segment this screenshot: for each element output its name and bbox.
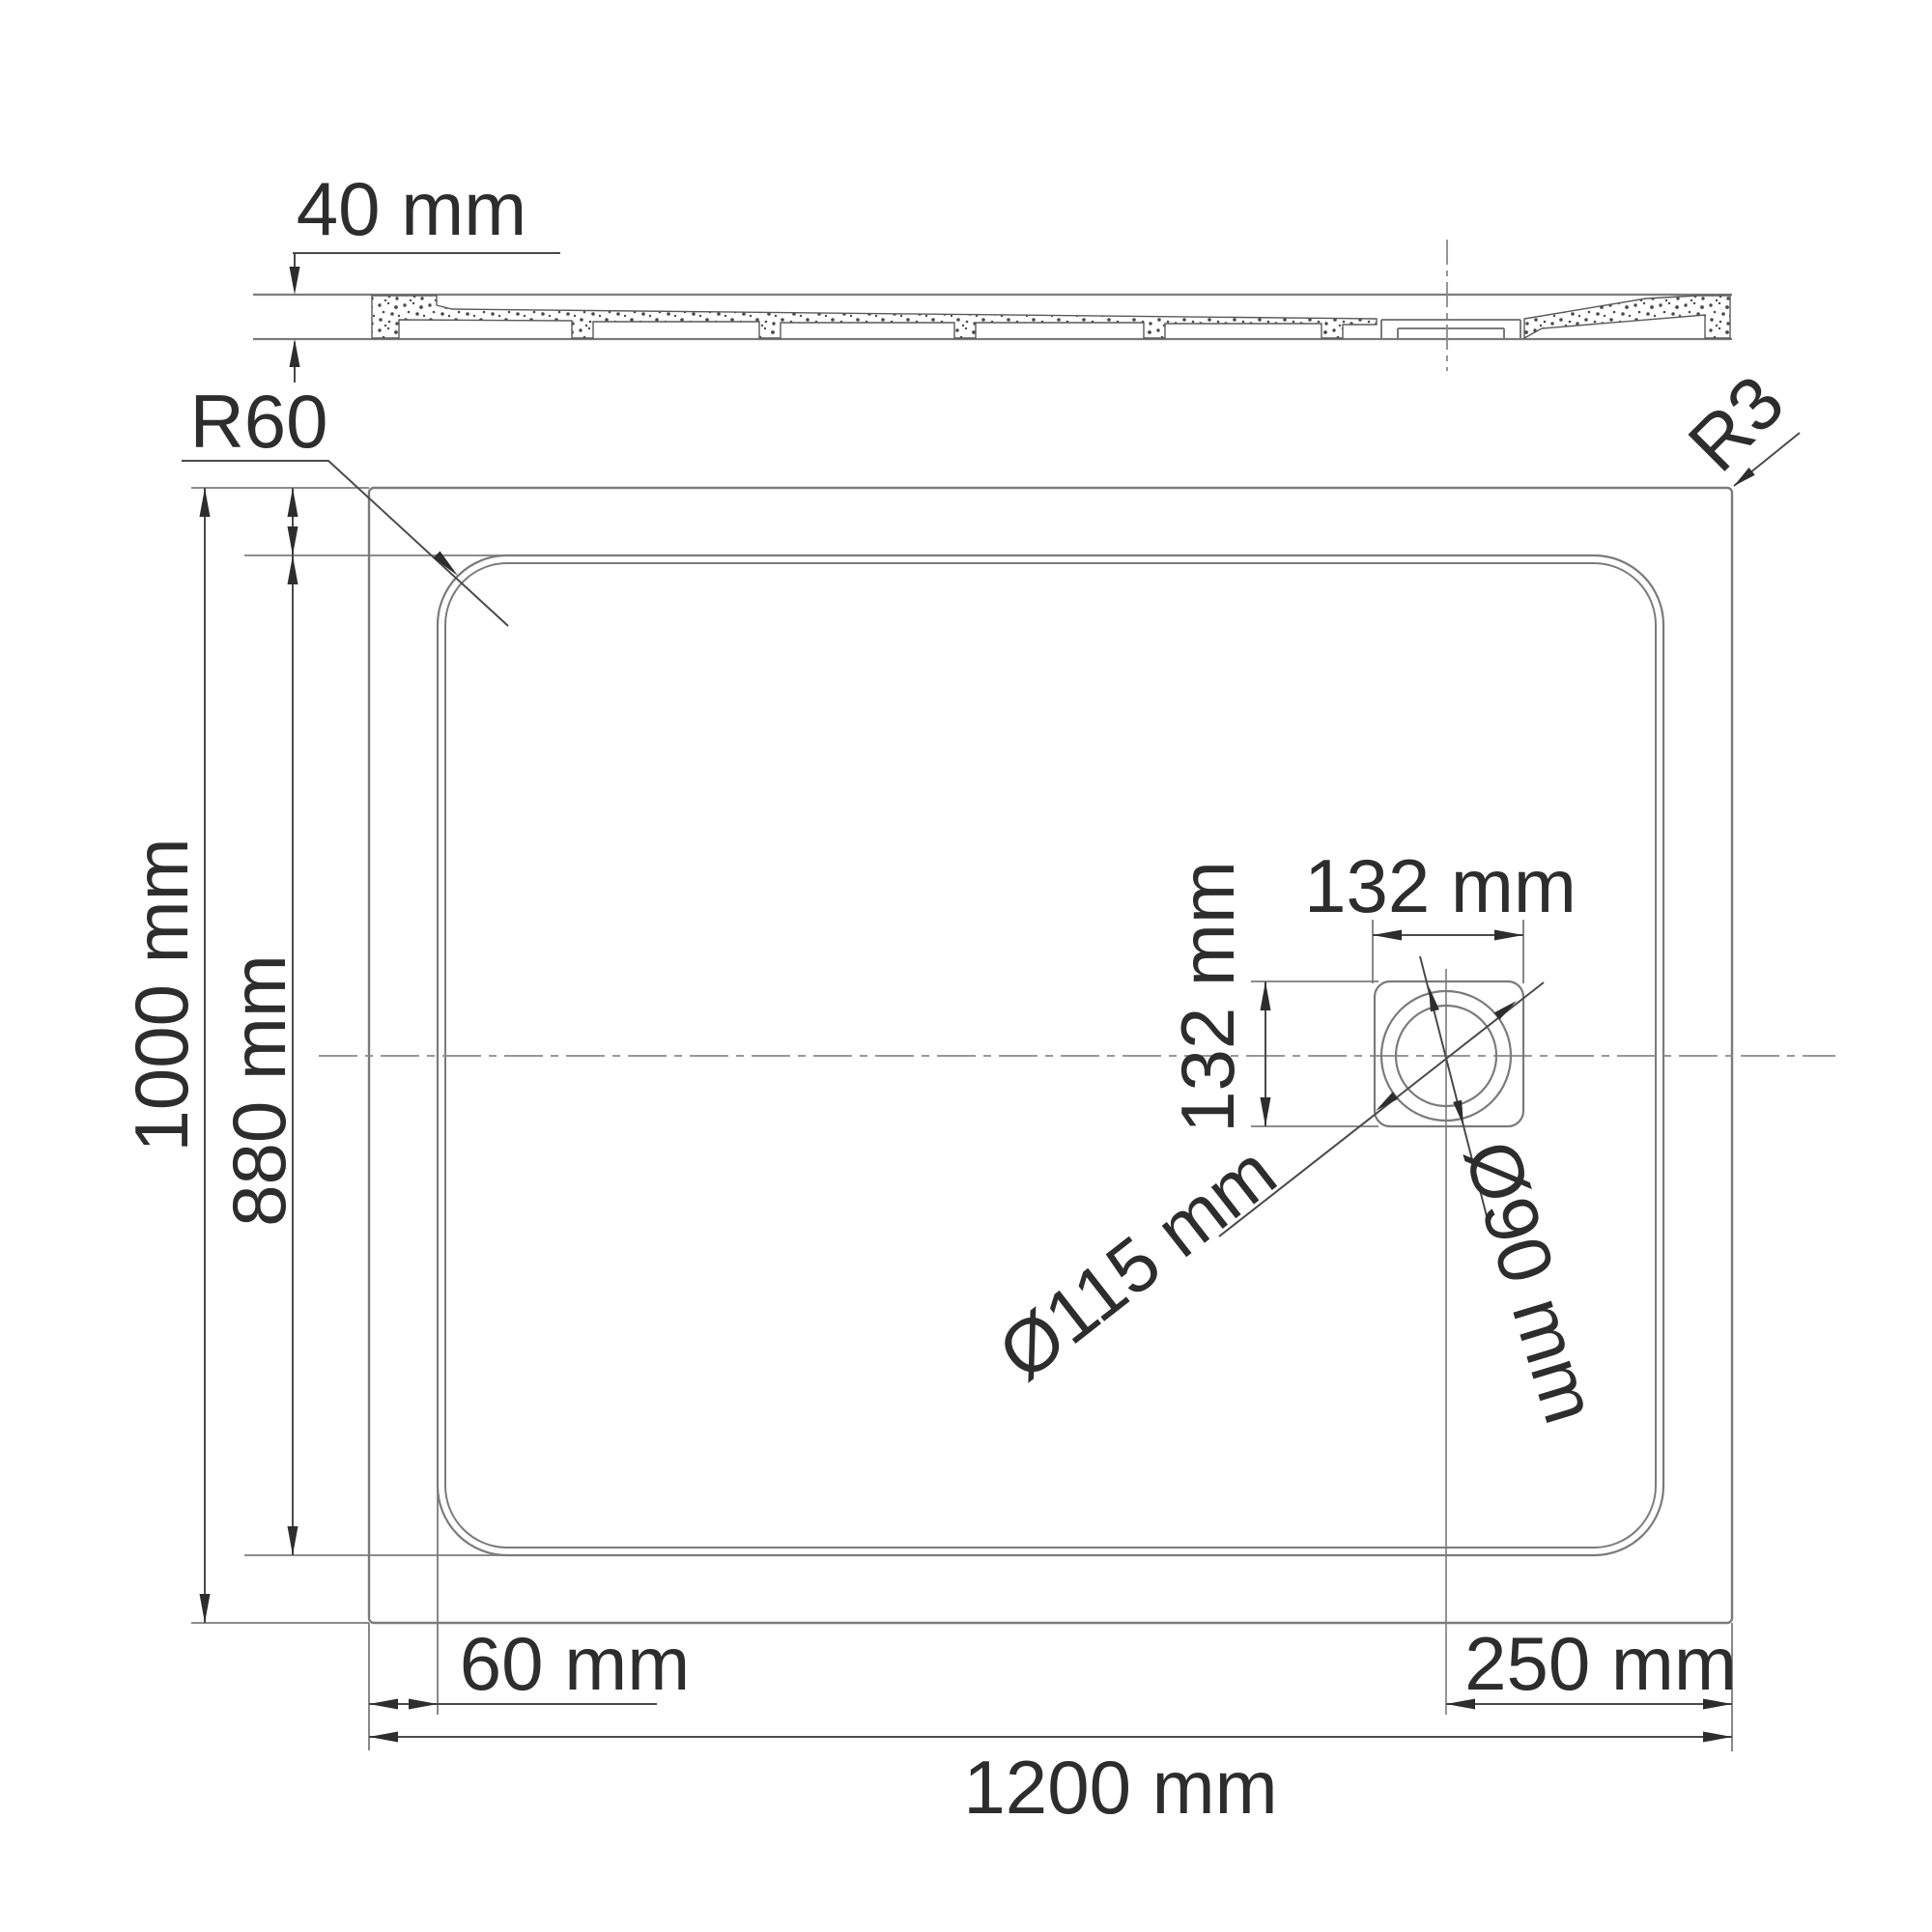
leader-r60 [182, 461, 508, 626]
section-drain-recess [1381, 320, 1520, 339]
extension-lines [191, 488, 1732, 1751]
drain [1375, 981, 1523, 1126]
label-radius-r60: R60 [189, 384, 327, 459]
label-depth-1000mm: 1000 mm [124, 838, 199, 1151]
section-body-left [372, 296, 1377, 338]
section-view [253, 240, 1732, 371]
plan-view [191, 488, 1835, 1751]
label-drain-edge-250mm: 250 mm [1464, 1626, 1737, 1701]
label-width-1200mm: 1200 mm [963, 1749, 1277, 1825]
label-depth-880mm: 880 mm [221, 954, 297, 1227]
section-body-right [1524, 296, 1730, 338]
arrow-down-icon [290, 267, 300, 295]
dimension-lines [182, 433, 1800, 1743]
label-drain-132mm-v: 132 mm [1170, 861, 1245, 1133]
arrow-up-icon [290, 339, 300, 367]
label-thickness-40mm: 40 mm [297, 171, 526, 246]
technical-drawing-canvas: 40 mm R60 R3 1000 mm 880 mm 132 mm 132 m… [0, 0, 1932, 1932]
label-drain-132mm-h: 132 mm [1304, 848, 1577, 923]
label-offset-60mm: 60 mm [460, 1626, 690, 1701]
